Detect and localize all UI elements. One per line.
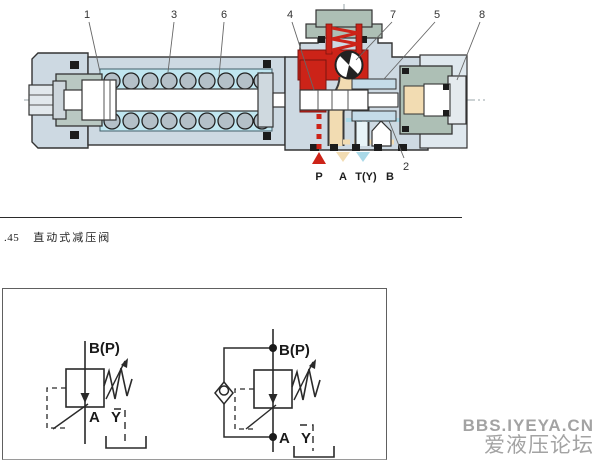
seal-top-right-tube bbox=[263, 60, 271, 68]
callout-3: 3 bbox=[171, 9, 177, 21]
valve-cross-section-drawing: P A T(Y) B 1 3 6 4 7 5 8 2 bbox=[0, 0, 600, 218]
callout-6: 6 bbox=[221, 9, 227, 21]
left-symbol-port-y: Y bbox=[111, 409, 121, 426]
left-symbol-port-a: A bbox=[89, 409, 100, 426]
callout-5: 5 bbox=[434, 9, 440, 21]
reducing-valve-symbol-right bbox=[215, 329, 334, 457]
figure-caption: .45直动式减压阀 bbox=[4, 229, 404, 245]
watermark-site: BBS.IYEYA.CN bbox=[463, 417, 594, 435]
figure-caption-number: .45 bbox=[4, 232, 19, 244]
port-label-a: A bbox=[339, 171, 347, 183]
figure-divider-line bbox=[0, 217, 462, 218]
callout-4: 4 bbox=[287, 9, 293, 21]
right-symbol-port-a: A bbox=[279, 430, 290, 447]
schematic-symbols-drawing: B(P) A Y B(P) A Y bbox=[3, 289, 386, 459]
watermark: BBS.IYEYA.CN 爱液压论坛 bbox=[463, 417, 594, 457]
pilot-ball bbox=[336, 52, 363, 79]
port-label-b: B bbox=[386, 171, 394, 183]
callout-8: 8 bbox=[479, 9, 485, 21]
schematic-symbols-box: B(P) A Y B(P) A Y bbox=[2, 288, 387, 460]
figure-caption-title: 直动式减压阀 bbox=[33, 232, 111, 244]
valve-spool-middle bbox=[300, 90, 368, 110]
seal-bottom-right-tube bbox=[263, 132, 271, 140]
port-label-p: P bbox=[315, 171, 322, 183]
t-port-arrow bbox=[356, 152, 370, 162]
pilot-top-cap bbox=[306, 10, 382, 43]
reducing-valve-symbol-left bbox=[47, 341, 146, 448]
a-port-arrow bbox=[336, 152, 350, 162]
watermark-name: 爱液压论坛 bbox=[463, 435, 594, 457]
right-end-assembly bbox=[400, 55, 467, 148]
callout-1: 1 bbox=[84, 9, 90, 21]
left-symbol-port-bp: B(P) bbox=[89, 340, 120, 357]
callout-2: 2 bbox=[403, 161, 409, 173]
valve-cross-section-figure: P A T(Y) B 1 3 6 4 7 5 8 2 bbox=[0, 0, 600, 218]
p-port-arrow bbox=[312, 152, 326, 164]
port-label-t: T(Y) bbox=[355, 171, 377, 183]
right-symbol-port-y: Y bbox=[301, 430, 311, 447]
right-symbol-port-bp: B(P) bbox=[279, 342, 310, 359]
callout-7: 7 bbox=[390, 9, 396, 21]
